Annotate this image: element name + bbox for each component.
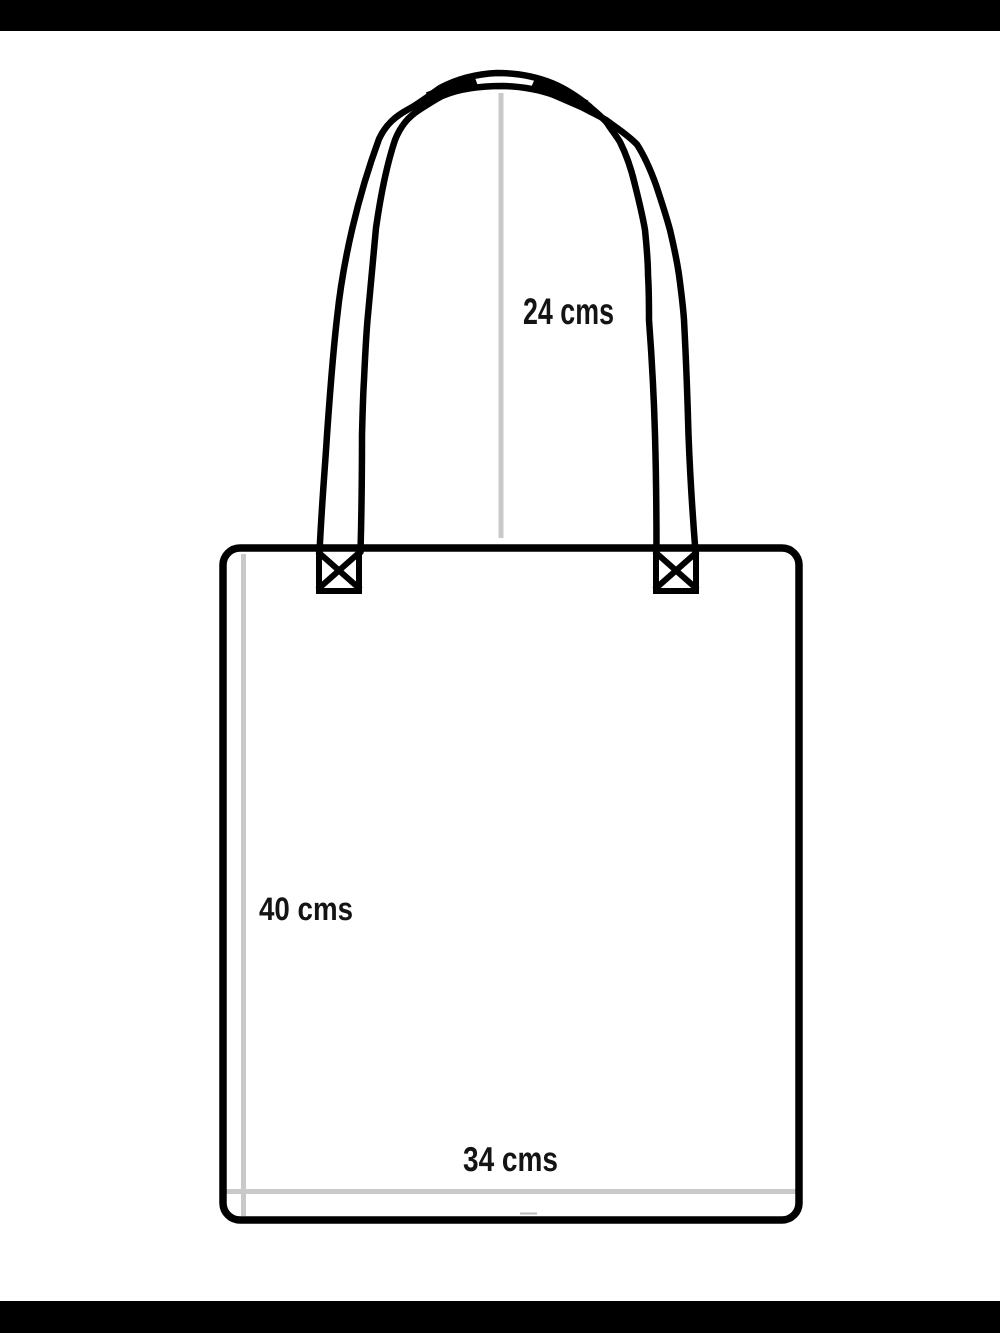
svg-text:34 cms: 34 cms [463,1141,558,1179]
svg-text:40 cms: 40 cms [259,891,353,927]
svg-text:24 cms: 24 cms [523,291,614,332]
